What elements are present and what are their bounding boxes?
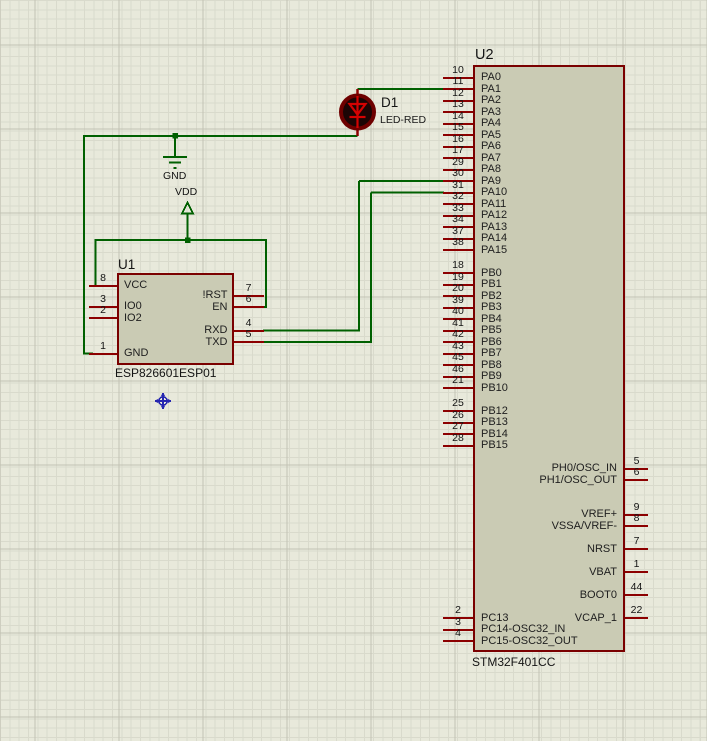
u2-pin-pb13-number: 26 (440, 409, 476, 421)
d1-ref-label[interactable]: D1 (381, 96, 398, 111)
u2-pin-vbat-name: VBAT (481, 566, 617, 579)
u1-pin-en-name: EN (124, 301, 228, 314)
u2-pin-pa2-number: 12 (440, 87, 476, 99)
u2-pin-pa5-number: 15 (440, 121, 476, 133)
u2-pin-pb10-number: 21 (440, 374, 476, 386)
u2-pin-pa11-number: 32 (440, 190, 476, 202)
u1-value-label[interactable]: ESP826601ESP01 (115, 367, 216, 380)
u2-pin-pc15osc32out-number: 4 (440, 627, 476, 639)
wire-pa10-txd[interactable] (263, 193, 444, 343)
u2-pin-nrst-number: 7 (619, 535, 655, 547)
vdd-label[interactable]: VDD (175, 187, 197, 199)
u2-ref-label[interactable]: U2 (475, 48, 494, 64)
led-d1[interactable] (341, 89, 374, 136)
u2-pin-vcap1-stub[interactable] (625, 617, 648, 619)
u2-pin-pb12-number: 25 (440, 397, 476, 409)
u2-pin-pb7-number: 43 (440, 340, 476, 352)
u1-pin-vcc-stub[interactable] (89, 285, 117, 287)
u2-pin-pa4-number: 14 (440, 110, 476, 122)
u2-pin-pa0-number: 10 (440, 64, 476, 76)
u2-pin-pb15-name: PB15 (481, 439, 617, 452)
u1-pin-rst-number: 7 (231, 282, 267, 294)
u2-pin-vcap1-name: VCAP_1 (481, 612, 617, 625)
origin-marker-icon (155, 393, 171, 409)
u2-pin-pb10-stub[interactable] (443, 387, 473, 389)
u2-pin-pb3-number: 39 (440, 294, 476, 306)
u2-pin-pb0-number: 18 (440, 259, 476, 271)
u2-pin-nrst-name: NRST (481, 543, 617, 556)
u1-ref-label[interactable]: U1 (118, 258, 135, 273)
u2-pin-pa12-number: 33 (440, 202, 476, 214)
u1-pin-gnd-number: 1 (85, 340, 121, 352)
wire-pa9-rxd[interactable] (263, 181, 444, 331)
u2-pin-pa10-number: 31 (440, 179, 476, 191)
u2-pin-pc14osc32in-number: 3 (440, 616, 476, 628)
u2-pin-boot0-name: BOOT0 (481, 589, 617, 602)
u2-pin-pb9-number: 46 (440, 363, 476, 375)
u2-pin-pb14-number: 27 (440, 420, 476, 432)
vdd-symbol[interactable] (182, 203, 193, 241)
u2-pin-nrst-stub[interactable] (625, 548, 648, 550)
u2-pin-ph0oscin-number: 5 (619, 455, 655, 467)
u2-pin-ph1oscout-name: PH1/OSC_OUT (481, 474, 617, 487)
u2-pin-pb5-number: 41 (440, 317, 476, 329)
u1-pin-gnd-name: GND (124, 347, 228, 360)
u2-pin-pa6-number: 16 (440, 133, 476, 145)
u2-pin-pb1-number: 19 (440, 271, 476, 283)
u2-pin-ph1oscout-number: 6 (619, 466, 655, 478)
wire-gnd-to-u1[interactable] (83, 135, 93, 355)
u2-pin-boot0-number: 44 (619, 581, 655, 593)
u1-pin-txd-stub[interactable] (234, 341, 264, 343)
u2-pin-vref-number: 9 (619, 501, 655, 513)
u2-pin-ph1oscout-stub[interactable] (625, 479, 648, 481)
u2-pin-pb15-stub[interactable] (443, 445, 473, 447)
u2-pin-pa8-number: 29 (440, 156, 476, 168)
u2-pin-pa13-number: 34 (440, 213, 476, 225)
schematic-canvas[interactable]: 10PA011PA112PA213PA314PA415PA516PA617PA7… (0, 0, 707, 741)
d1-value-label[interactable]: LED-RED (380, 115, 426, 127)
u2-pin-pc15osc32out-stub[interactable] (443, 640, 473, 642)
u2-value-label[interactable]: STM32F401CC (472, 656, 555, 669)
u1-pin-txd-number: 5 (231, 328, 267, 340)
u1-pin-txd-name: TXD (124, 336, 228, 349)
u2-pin-pb15-number: 28 (440, 432, 476, 444)
ground-symbol[interactable] (163, 136, 187, 168)
u2-pin-pa3-number: 13 (440, 98, 476, 110)
u2-pin-pc15osc32out-name: PC15-OSC32_OUT (481, 635, 617, 648)
u2-pin-vssavref-stub[interactable] (625, 525, 648, 527)
junction-dot (185, 238, 191, 244)
u2-pin-pb4-number: 40 (440, 305, 476, 317)
u2-pin-vssavref-name: VSSA/VREF- (481, 520, 617, 533)
u1-pin-vcc-number: 8 (85, 272, 121, 284)
u2-pin-vbat-number: 1 (619, 558, 655, 570)
u2-pin-pa15-name: PA15 (481, 244, 617, 257)
u2-pin-boot0-stub[interactable] (625, 594, 648, 596)
junction-dot (173, 133, 179, 139)
u1-pin-io2-number: 2 (85, 304, 121, 316)
u2-pin-pa15-number: 38 (440, 236, 476, 248)
u2-pin-pc13-number: 2 (440, 604, 476, 616)
u2-pin-pb10-name: PB10 (481, 382, 617, 395)
u1-pin-en-stub[interactable] (234, 306, 264, 308)
u1-pin-en-number: 6 (231, 293, 267, 305)
u2-pin-pa1-number: 11 (440, 75, 476, 87)
u2-pin-vbat-stub[interactable] (625, 571, 648, 573)
u2-pin-pa9-number: 30 (440, 167, 476, 179)
u2-pin-pb8-number: 45 (440, 351, 476, 363)
u1-pin-rxd-number: 4 (231, 317, 267, 329)
gnd-label[interactable]: GND (163, 171, 186, 183)
u1-pin-io0-number: 3 (85, 293, 121, 305)
u2-pin-pa7-number: 17 (440, 144, 476, 156)
u2-pin-vcap1-number: 22 (619, 604, 655, 616)
u2-pin-pa15-stub[interactable] (443, 249, 473, 251)
u2-pin-pb6-number: 42 (440, 328, 476, 340)
u2-pin-pb2-number: 20 (440, 282, 476, 294)
u1-pin-io2-stub[interactable] (89, 317, 117, 319)
u2-pin-pa14-number: 37 (440, 225, 476, 237)
u1-pin-gnd-stub[interactable] (89, 353, 117, 355)
u2-pin-vssavref-number: 8 (619, 512, 655, 524)
